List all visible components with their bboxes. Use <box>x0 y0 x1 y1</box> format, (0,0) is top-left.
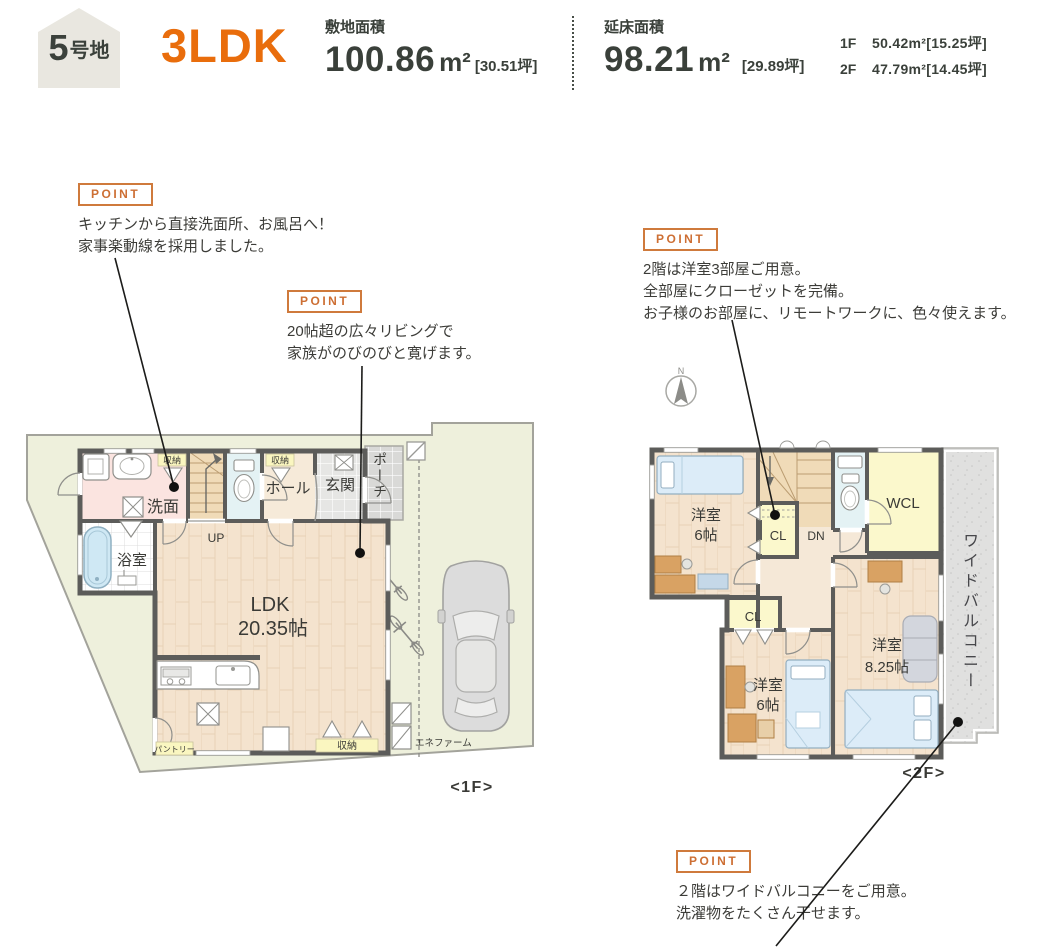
bath-label: 浴室 <box>117 552 147 569</box>
dn-label: DN <box>807 529 824 543</box>
wcl-label: WCL <box>886 495 919 512</box>
point-line: 家族がのびのびと寛げます。 <box>287 343 481 365</box>
storage-label: 収納 <box>163 455 181 466</box>
refrigerator-space-icon <box>197 703 219 725</box>
balcony-label: ワイドバルコニー <box>956 532 980 692</box>
point-tag: POINT <box>643 228 718 251</box>
site-area-tsubo: [30.51坪] <box>475 55 538 76</box>
floor-breakdown-row-1f: 1F 50.42m²[15.25坪] <box>840 33 987 59</box>
site-area-label: 敷地面積 <box>325 16 537 37</box>
floor-plan-2f: N <box>640 360 1044 790</box>
floor-area-label: 延床面積 <box>604 16 804 37</box>
laundry-space-icon <box>123 497 143 517</box>
point-line: 2階は洋室3部屋ご用意。 <box>643 259 1016 281</box>
bed-icon <box>845 690 938 748</box>
lot-number: 5 <box>48 27 68 69</box>
point-tag: POINT <box>676 850 751 873</box>
point-line: 20帖超の広々リビングで <box>287 321 481 343</box>
point-line: お子様のお部屋に、リモートワークに、色々使えます。 <box>643 303 1016 325</box>
up-label: UP <box>208 531 225 545</box>
page: { "header": { "lot_badge": {"number": "5… <box>0 0 1044 950</box>
car-icon <box>438 561 514 731</box>
header-divider <box>572 16 574 90</box>
vent-windows-2f <box>780 441 830 448</box>
point-line: 全部屋にクローゼットを完備。 <box>643 281 1016 303</box>
site-area-block: 敷地面積 100.86 m² [30.51坪] <box>325 16 537 80</box>
floor-caption-2f: <2F> <box>902 765 945 782</box>
bedroom3-size-label: 8.25帖 <box>865 659 909 676</box>
site-area-value: 100.86 <box>325 40 435 80</box>
point-tag: POINT <box>287 290 362 313</box>
point-line: 洗濯物をたくさん干せます。 <box>676 903 916 925</box>
storage-label: 収納 <box>271 455 289 466</box>
entrance-label: 玄関 <box>325 477 355 494</box>
washing-machine-icon <box>83 454 109 480</box>
bed-icon <box>786 660 830 748</box>
utility-meter-icon <box>407 442 425 460</box>
floor-area-unit: m² <box>698 47 730 78</box>
bedroom2-label: 洋室 <box>753 677 783 694</box>
pantry-label-box: パントリー <box>154 742 194 755</box>
point-callout-rooms: POINT 2階は洋室3部屋ご用意。 全部屋にクローゼットを完備。 お子様のお部… <box>643 228 1016 325</box>
lot-number-badge: 5号地 <box>38 8 120 88</box>
point-callout-balcony: POINT ２階はワイドバルコニーをご用意。 洗濯物をたくさん干せます。 <box>676 850 916 925</box>
floor-plan-1f: 収納 収納 パントリー 収納 エ <box>20 415 540 810</box>
closet2-label: CL <box>745 609 762 624</box>
floor-area-block: 延床面積 98.21 m² [29.89坪] <box>604 16 804 80</box>
lot-number-suffix: 号地 <box>70 34 110 63</box>
cabinet-icon <box>263 727 289 751</box>
point-tag: POINT <box>78 183 153 206</box>
plan-type: 3LDK <box>161 18 288 73</box>
bathtub-icon <box>84 527 111 588</box>
shoe-cabinet-icon <box>335 455 353 470</box>
floor-1f-label: 1F <box>840 35 872 51</box>
point-callout-kitchen: POINT キッチンから直接洗面所、お風呂へ！ 家事楽動線を採用しました。 <box>78 183 333 258</box>
floor-area-value: 98.21 <box>604 40 694 80</box>
enefarm-label: エネファーム <box>415 738 472 749</box>
point-line: ２階はワイドバルコニーをご用意。 <box>676 881 916 903</box>
washroom-label: 洗面 <box>147 498 179 516</box>
bed-icon <box>657 456 743 494</box>
point-line: キッチンから直接洗面所、お風呂へ！ <box>78 214 333 236</box>
bedroom2-size-label: 6帖 <box>756 697 779 714</box>
toilet-icon <box>234 460 254 502</box>
point-callout-living: POINT 20帖超の広々リビングで 家族がのびのびと寛げます。 <box>287 290 481 365</box>
compass-n-label: N <box>678 366 685 376</box>
floor-2f-label: 2F <box>840 61 872 77</box>
pantry-label: パントリー <box>154 745 194 754</box>
storage-label: 収納 <box>337 739 357 752</box>
floor-breakdown: 1F 50.42m²[15.25坪] 2F 47.79m²[14.45坪] <box>840 33 987 85</box>
floor-2f-area: 47.79m²[14.45坪] <box>872 59 987 79</box>
floor-breakdown-row-2f: 2F 47.79m²[14.45坪] <box>840 59 987 85</box>
compass-icon: N <box>666 366 696 406</box>
ldk-size-label: 20.35帖 <box>238 617 308 640</box>
bedroom1-label: 洋室 <box>691 507 721 524</box>
bedroom3-label: 洋室 <box>872 637 902 654</box>
hall-label: ホール <box>265 480 310 497</box>
floor-1f-area: 50.42m²[15.25坪] <box>872 33 987 53</box>
porch-label: ポーチ <box>370 452 390 500</box>
vanity-sink-icon <box>113 454 151 479</box>
point-line: 家事楽動線を採用しました。 <box>78 236 333 258</box>
bedroom1-size-label: 6帖 <box>694 527 717 544</box>
ldk-label: LDK <box>251 594 291 616</box>
closet1-label: CL <box>770 528 787 543</box>
floor-caption-1f: <1F> <box>450 779 493 796</box>
floor-area-tsubo: [29.89坪] <box>742 55 805 76</box>
site-area-unit: m² <box>439 47 471 78</box>
